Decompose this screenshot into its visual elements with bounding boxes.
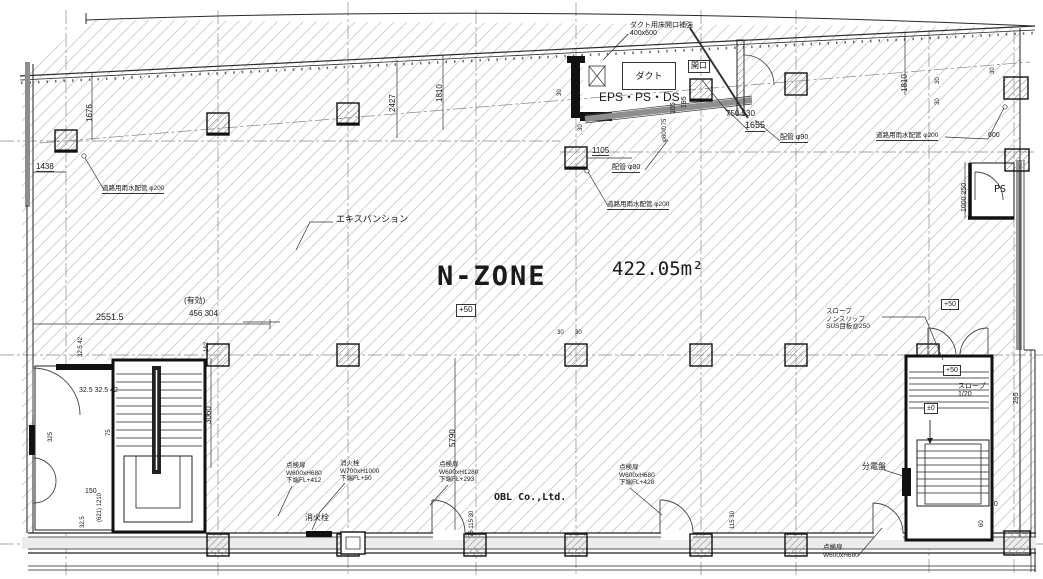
rain-pipe-left: 道路用雨水配管 φ200 — [102, 185, 164, 194]
dim-32-42-vert: 32.5 42 — [78, 337, 85, 357]
zone-level-box: +50 — [456, 304, 476, 317]
dim-1655: 1655 — [745, 120, 765, 132]
dim-456-304: 456 304 — [189, 309, 218, 318]
eps-ps-ds-label: EPS・PS・DS — [599, 90, 680, 104]
pipe-90-label: 配管 φ90 — [780, 134, 808, 143]
dim-295: 295 — [1013, 392, 1021, 404]
hydrant-note: 消火栓 W700xH1000 下端FL+50 — [340, 460, 379, 483]
ramp-level-zero: ±0 — [924, 403, 938, 414]
dim-32-5-b: 32.5 — [80, 516, 87, 528]
zone-name: N-ZONE — [437, 261, 547, 293]
dim-30-ramp: 30 — [990, 501, 998, 509]
dim-30-ps-a: 30 — [990, 67, 997, 74]
dim-621-1210: (621) 1210 — [97, 493, 104, 522]
rain-pipe-right: 道路用雨水配管 φ200 — [876, 132, 938, 141]
watermark: OBL Co.,Ltd. — [494, 492, 566, 504]
dim-30-eps-b: 30 — [578, 124, 585, 131]
inspection-door-note-2: 点検扉 W600xH1280 下端FL+293 — [439, 461, 478, 484]
dim-80-75: φ80の75 — [662, 119, 669, 142]
ramp-level-top: +50 — [943, 365, 961, 376]
zone-area: 422.05m² — [612, 258, 704, 280]
dim-2427: 2427 — [388, 94, 397, 112]
expansion-joint-label: エキスパンション — [336, 214, 408, 225]
dim-75-115-30: 75 115 30 — [469, 511, 476, 537]
dim-30-ps-b: 30 — [935, 77, 942, 84]
dim-30-mid-b: 30 — [575, 330, 582, 337]
dim-1676: 1676 — [85, 104, 94, 122]
dim-750-530: 750 530 — [726, 109, 755, 118]
distribution-board-label: 分電盤 — [862, 462, 886, 471]
dim-3060: 3060 — [204, 406, 213, 424]
slope-grade-label: スロープ 1/20 — [958, 383, 986, 400]
dim-5790: 5790 — [448, 429, 457, 447]
dim-30-mid-a: 30 — [557, 330, 564, 337]
dim-75: 75 — [106, 429, 113, 436]
dim-600: 600 — [988, 132, 1000, 140]
dim-1810-right: 1810 — [900, 74, 909, 92]
dim-1810-left: 1810 — [435, 84, 444, 102]
dim-1438: 1438 — [36, 162, 54, 172]
effective-width-label: (有効) — [184, 296, 205, 305]
duct-box-label: ダクト — [622, 62, 676, 90]
dim-115-30: 115 30 — [730, 511, 737, 529]
floor-plan: N-ZONE422.05m²+50EPS・PS・DSダクト開口ダクト用床開口補強… — [0, 0, 1043, 579]
rain-pipe-center: 道路用雨水配管 φ200 — [607, 201, 669, 210]
inspection-door-note-3: 点検扉 W600xH680 下端FL+428 — [619, 464, 655, 487]
opening-box-label: 開口 — [688, 60, 710, 73]
dim-105: 105 — [670, 102, 678, 114]
dim-150: 150 — [85, 488, 97, 496]
dim-30-ps-c: 30 — [935, 98, 942, 105]
annotation-layer: N-ZONE422.05m²+50EPS・PS・DSダクト開口ダクト用床開口補強… — [0, 0, 1043, 579]
ps-label: PS — [994, 184, 1006, 196]
hydrant-label: 消火栓 — [305, 513, 329, 522]
dim-60: 60 — [979, 520, 986, 527]
inspection-door-note-4: 点検扉 W600xH680 — [823, 544, 859, 559]
dim-162: 162 — [204, 342, 211, 352]
slope-note: スロープ ノンスリップ SUS目板@250 — [826, 308, 870, 331]
inspection-door-note-1: 点検扉 W600xH680 下端FL+412 — [286, 462, 322, 485]
dim-1000-250: 1000 250 — [961, 183, 969, 212]
ramp-level-outside: +50 — [941, 299, 959, 310]
dim-325: 325 — [48, 432, 55, 442]
dim-32-group: 32.5 32.5 42 — [79, 387, 118, 395]
dim-1105: 1105 — [592, 146, 609, 156]
dim-30-eps-a: 30 — [557, 89, 564, 96]
dim-2551-5: 2551.5 — [96, 312, 124, 323]
dim-195: 195 — [681, 96, 689, 108]
duct-opening-note: ダクト用床開口補強 400x600 — [630, 22, 693, 39]
pipe-80-label: 配管 φ80 — [612, 164, 640, 173]
